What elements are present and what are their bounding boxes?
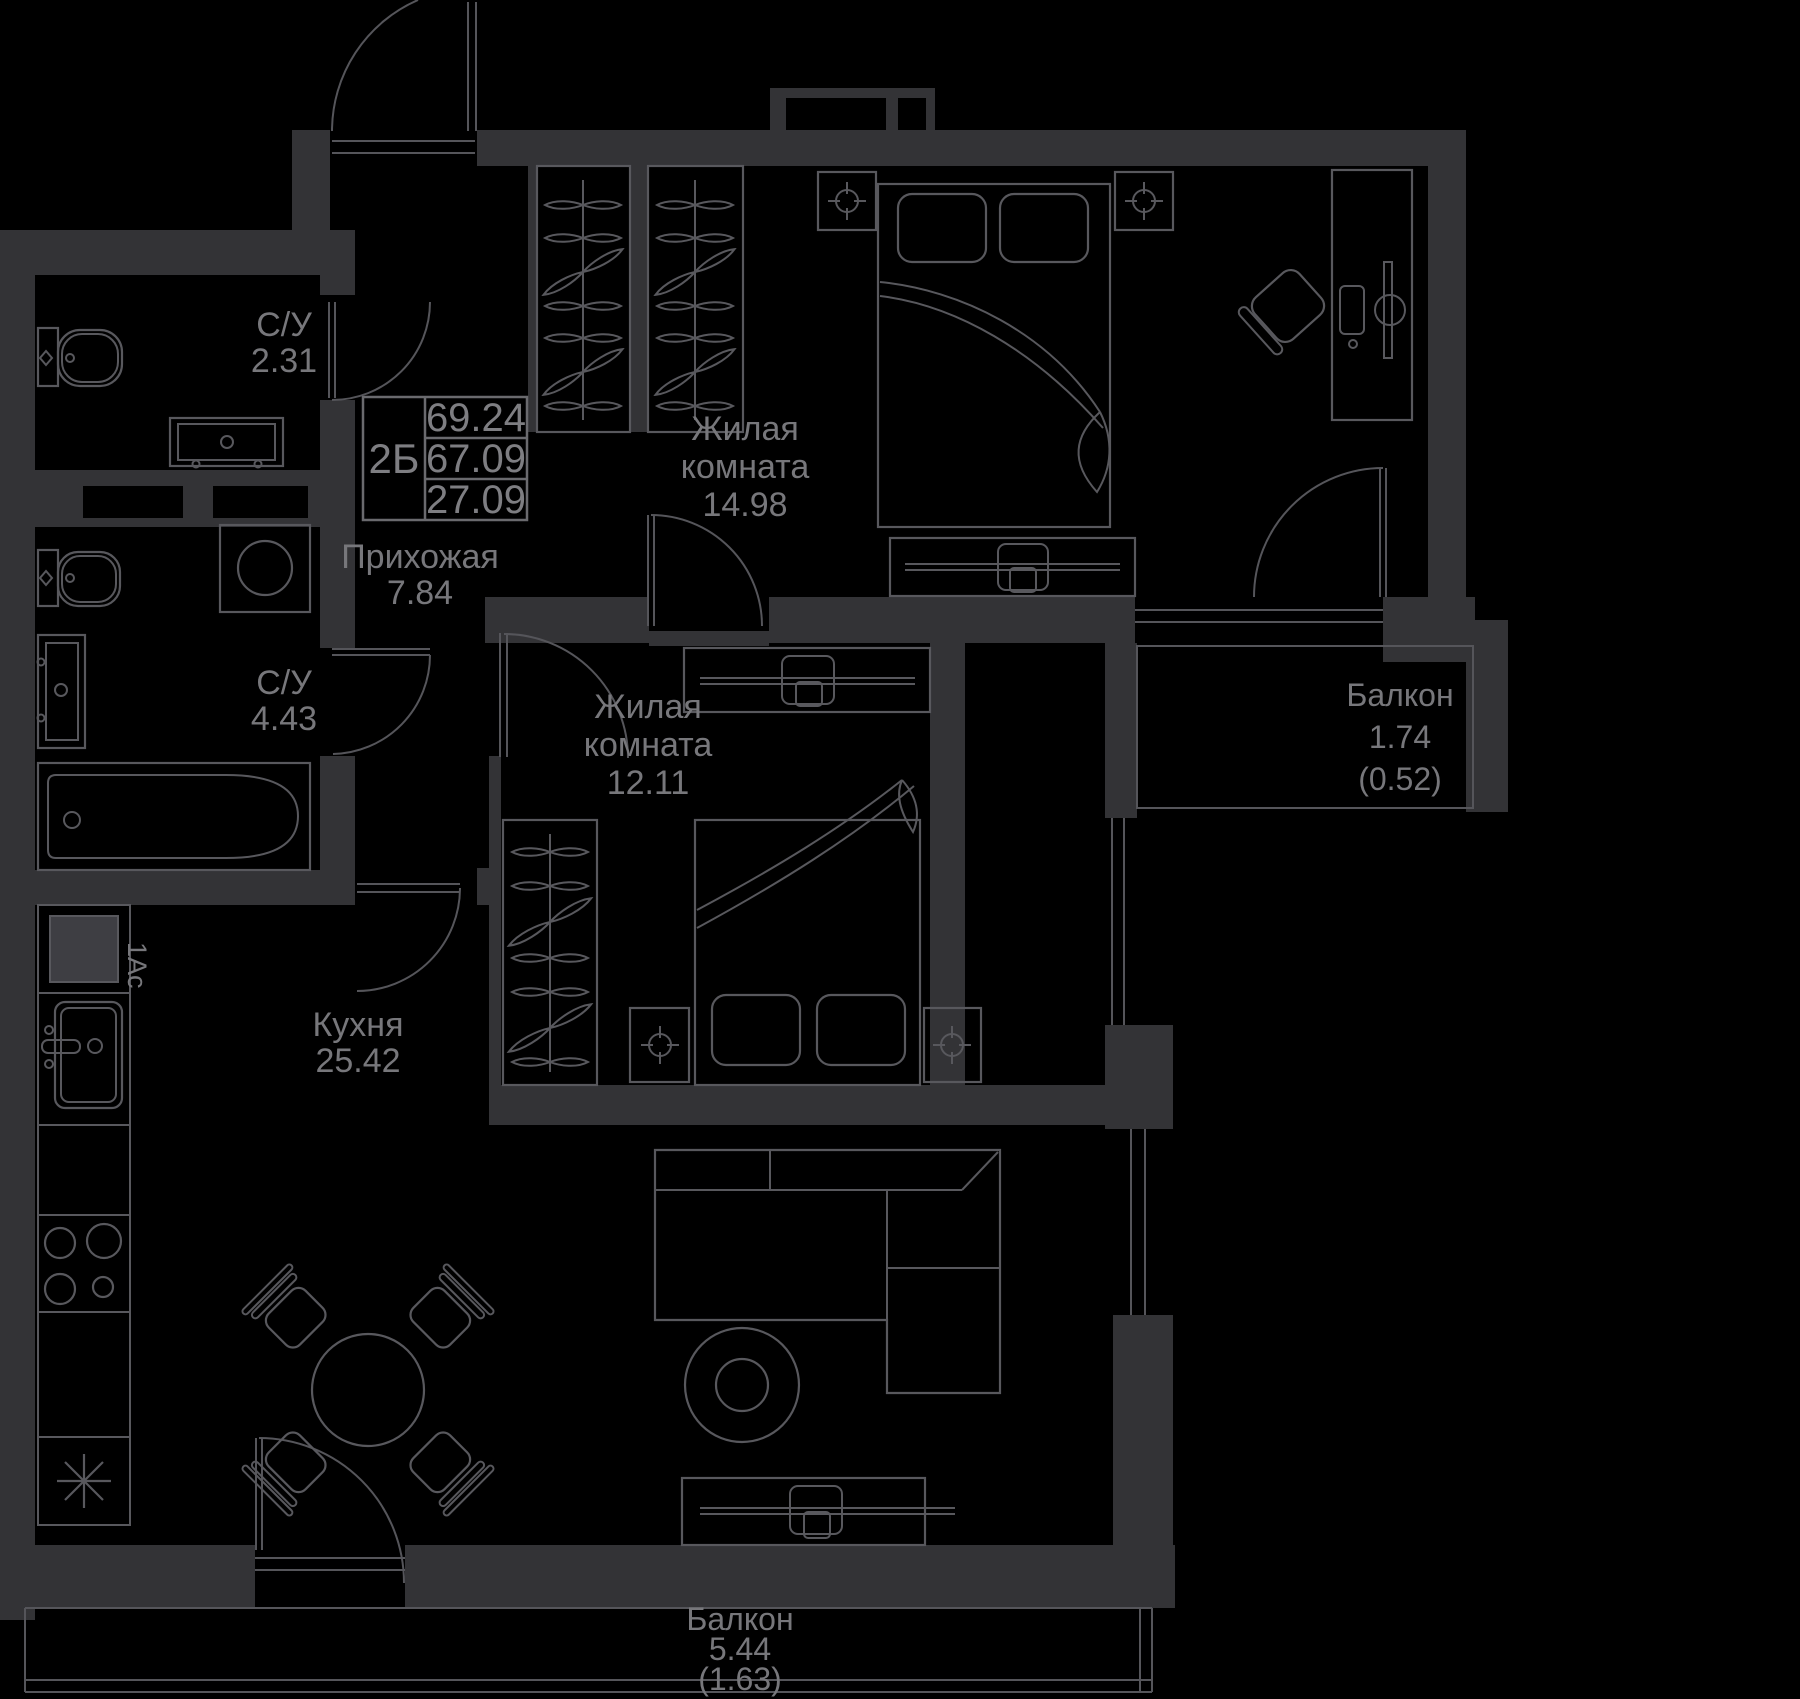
room-name: Прихожая [341, 538, 499, 576]
living-area: 67.09 [426, 437, 526, 481]
room-name: комната [681, 448, 810, 486]
rug-icon [685, 1328, 799, 1442]
room-name: С/У [256, 664, 312, 702]
floor-plan: 2Б 69.24 67.09 27.09 С/У 2.31 С/У 4.43 П… [0, 0, 1800, 1699]
unit-label: 2Б [369, 435, 420, 482]
nightstand-icon [818, 172, 876, 230]
bathroom-sink-icon [170, 418, 283, 468]
nightstand-icon [1115, 172, 1173, 230]
desk-chair-icon [1237, 264, 1331, 357]
room-label-kitchen: Кухня 25.42 [313, 1006, 404, 1080]
total-area: 69.24 [426, 396, 526, 440]
nightstand-icon [630, 1008, 689, 1082]
duct-icon [50, 916, 118, 982]
vanity-icon [38, 635, 86, 748]
floor-plan-canvas: 2Б 69.24 67.09 27.09 С/У 2.31 С/У 4.43 П… [0, 0, 1800, 1699]
chair-icon [401, 1423, 495, 1517]
walls-layer [0, 88, 1508, 1620]
wardrobe-icon [537, 166, 630, 432]
desk-icon [1332, 170, 1412, 420]
lamp-icon [828, 182, 866, 220]
riser-label: 1Ас [122, 942, 152, 989]
room-name: Кухня [313, 1006, 404, 1044]
room-label-hallway: Прихожая 7.84 [341, 538, 499, 612]
kitchen-counter [38, 905, 130, 1525]
balcony-bottom-door [255, 1438, 405, 1583]
kitchen-sink-icon [42, 1002, 122, 1108]
lamp-icon [641, 1026, 679, 1064]
room-area: 1.74 [1369, 719, 1431, 755]
info-box: 2Б 69.24 67.09 27.09 [363, 396, 527, 522]
room-label-bathroom-2: С/У 4.43 [251, 664, 317, 738]
room-area: 14.98 [702, 486, 787, 524]
tv-stand-icon [682, 1478, 955, 1545]
wardrobe-icon [648, 166, 743, 432]
balcony-bottom-outline [25, 1608, 1152, 1692]
tv-stand-icon [684, 648, 930, 712]
dresser-icon [890, 538, 1135, 596]
room-name: Балкон [1346, 677, 1453, 713]
stove-icon [45, 1224, 121, 1304]
rooms-area: 27.09 [426, 478, 526, 522]
doors-windows-layer [255, 0, 1386, 1583]
room-label-bedroom-2: Жилая комната 12.11 [584, 688, 713, 802]
bathroom-2-door [332, 649, 430, 754]
fridge-icon [57, 1454, 111, 1508]
bedroom-1-door [648, 515, 762, 626]
kitchen-door [357, 884, 460, 991]
washing-machine-icon [220, 525, 310, 612]
room-area: 7.84 [387, 574, 453, 612]
toilet-icon [38, 328, 122, 386]
chair-icon [241, 1263, 335, 1357]
balcony-right-door [1135, 468, 1386, 622]
room-label-bathroom-1: С/У 2.31 [251, 306, 317, 380]
dining-table-icon [312, 1334, 424, 1446]
room-area-reduced: (1.63) [698, 1661, 782, 1697]
room-name: комната [584, 726, 713, 764]
room-area: 25.42 [315, 1042, 400, 1080]
room-label-balcony-bottom: Балкон 5.44 (1.63) [686, 1601, 793, 1697]
room-area: 2.31 [251, 342, 317, 380]
room-name: Жилая [691, 410, 799, 448]
bed-icon [878, 184, 1110, 527]
toilet-icon [38, 550, 120, 606]
bathroom-1-door [329, 302, 430, 400]
bed-icon [695, 780, 920, 1085]
room-area: 12.11 [607, 764, 690, 802]
room-label-balcony-right: Балкон 1.74 (0.52) [1346, 677, 1453, 797]
room-area-reduced: (0.52) [1358, 761, 1442, 797]
lamp-icon [1125, 182, 1163, 220]
entrance-door [332, 0, 476, 153]
wardrobe-icon [503, 820, 597, 1085]
bathtub-icon [38, 763, 310, 870]
room-area: 4.43 [251, 700, 317, 738]
room-name: Жилая [594, 688, 702, 726]
chair-icon [401, 1263, 495, 1357]
room-label-bedroom-1: Жилая комната 14.98 [681, 410, 810, 524]
room-name: С/У [256, 306, 312, 344]
sofa-icon [655, 1150, 1000, 1393]
